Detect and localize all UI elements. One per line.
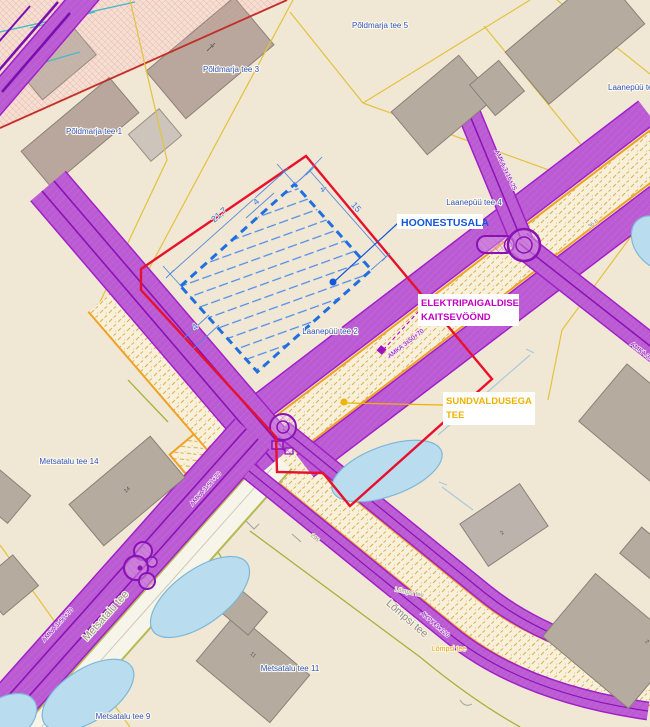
elektri-label-line1: ELEKTRIPAIGALDISE [421,298,519,309]
pole-symbol [139,573,155,589]
sundvaldus-label-line2: TEE [446,410,464,421]
parcel-label: Metsatalu tee 9 [96,712,151,721]
parcel-label: Põldmarja tee 5 [352,21,409,30]
map-canvas[interactable]: 21,7 15 4 4 4 Põldmarja tee 5 Põldmarja … [0,0,650,727]
parcel-label: Metsatalu tee 14 [39,457,99,466]
parcel-label: Laanepüü tee [608,83,650,92]
parcel-label: Metsatalu tee 11 [261,664,320,673]
hoonestusala-point [330,279,337,286]
parcel-label: Laanepüü tee 4 [446,198,502,207]
road-name-yellow: Lõmpsi tee [432,646,466,653]
elektri-label-line2: KAITSEVÖÖND [421,312,491,323]
map-viewport[interactable]: 21,7 15 4 4 4 Põldmarja tee 5 Põldmarja … [0,0,650,727]
sundvaldus-label-line1: SUNDVALDUSEGA [446,396,532,407]
sundvaldus-point [341,399,348,406]
parcel-label: Põldmarja tee 3 [203,65,260,74]
hoonestusala-label: HOONESTUSALA [401,217,490,229]
junction-symbol [508,229,540,261]
parcel-label: Põldmarja tee 1 [66,127,123,136]
parcel-label: Laanepüü tee 2 [302,327,358,336]
